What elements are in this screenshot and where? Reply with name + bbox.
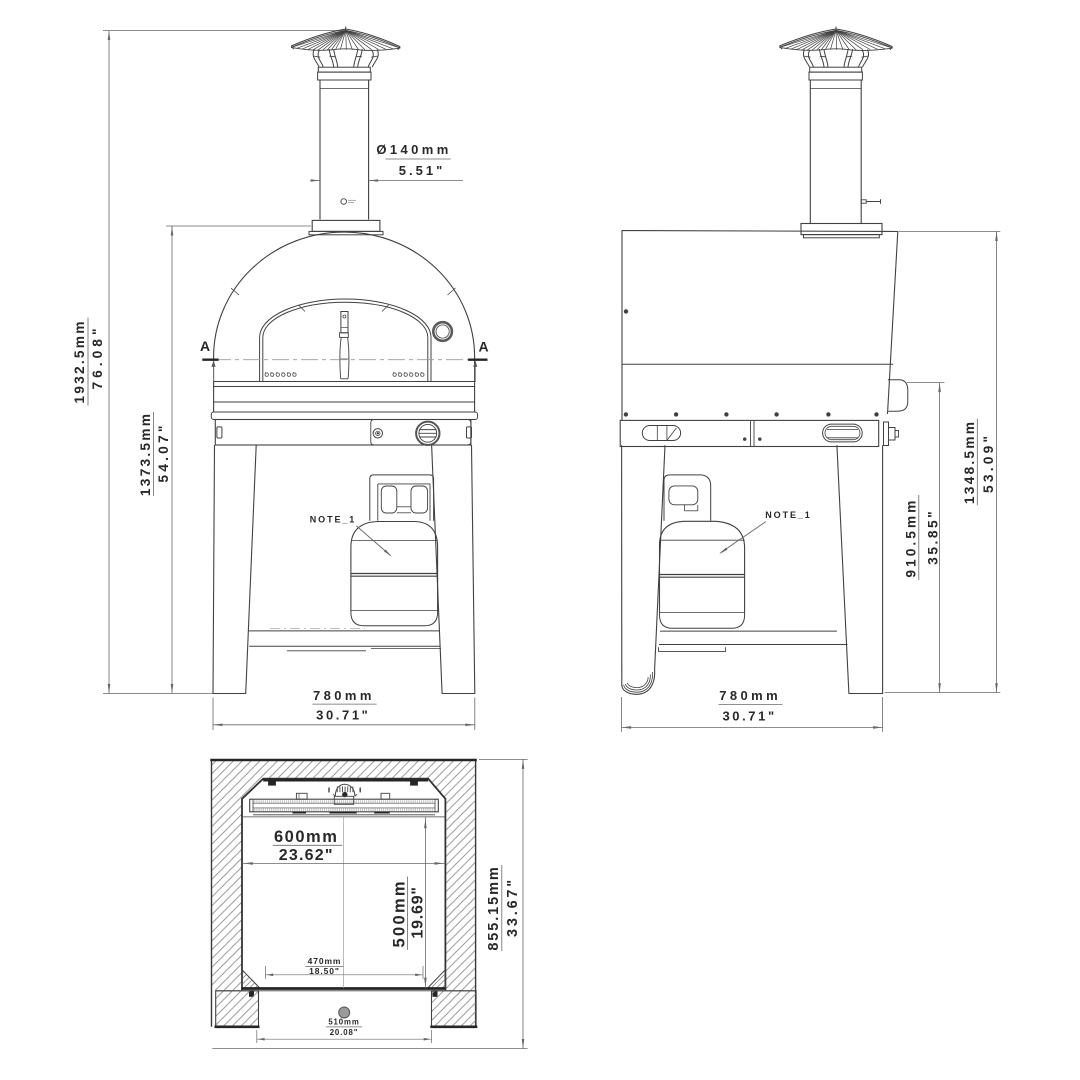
svg-text:5.51": 5.51" xyxy=(399,163,445,178)
svg-text:54.07": 54.07" xyxy=(156,422,171,482)
svg-text:510mm: 510mm xyxy=(328,1018,359,1027)
svg-text:30.71": 30.71" xyxy=(722,709,776,724)
svg-text:1373.5mm: 1373.5mm xyxy=(138,412,153,496)
svg-text:20.08": 20.08" xyxy=(330,1028,359,1037)
svg-text:780mm: 780mm xyxy=(313,688,375,703)
svg-text:470mm: 470mm xyxy=(308,956,342,966)
svg-text:33.67": 33.67" xyxy=(505,877,521,937)
svg-text:600mm: 600mm xyxy=(274,828,338,846)
svg-text:910.5mm: 910.5mm xyxy=(904,498,919,578)
svg-text:500mm: 500mm xyxy=(391,879,409,947)
svg-text:Ø140mm: Ø140mm xyxy=(376,142,451,157)
svg-text:23.62": 23.62" xyxy=(279,847,334,864)
svg-text:855.15mm: 855.15mm xyxy=(486,865,502,950)
svg-text:A: A xyxy=(478,338,488,354)
svg-text:53.09": 53.09" xyxy=(981,433,996,493)
svg-text:NOTE_1: NOTE_1 xyxy=(765,510,811,520)
svg-text:NOTE_1: NOTE_1 xyxy=(310,514,356,524)
svg-text:76.08": 76.08" xyxy=(90,324,105,389)
svg-text:780mm: 780mm xyxy=(719,688,781,703)
svg-text:A: A xyxy=(200,338,210,354)
svg-text:35.85": 35.85" xyxy=(926,509,941,565)
svg-text:30.71": 30.71" xyxy=(316,708,370,723)
svg-text:18.50": 18.50" xyxy=(309,966,340,976)
svg-text:1932.5mm: 1932.5mm xyxy=(72,319,87,403)
svg-text:1348.5mm: 1348.5mm xyxy=(962,420,977,504)
svg-text:19.69": 19.69" xyxy=(409,886,426,938)
